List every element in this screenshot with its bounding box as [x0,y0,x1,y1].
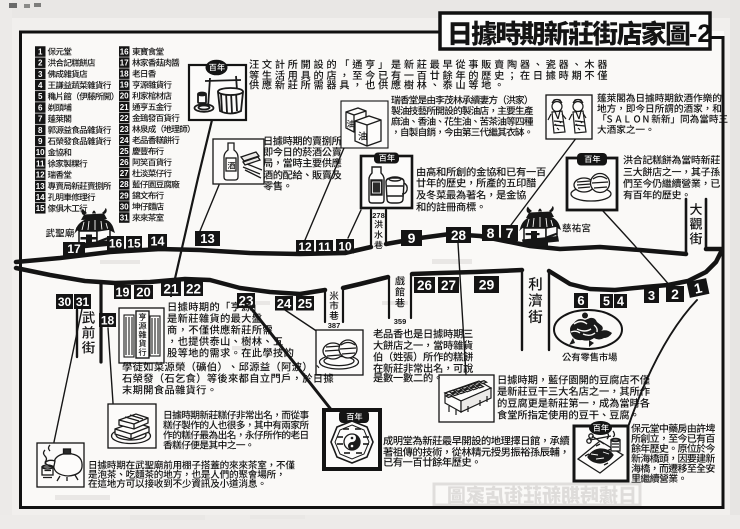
svg-text:5: 5 [38,92,43,101]
svg-text:18: 18 [120,70,129,79]
svg-text:18: 18 [101,313,115,327]
svg-text:4: 4 [617,295,624,309]
svg-text:24: 24 [120,136,129,145]
svg-text:25: 25 [298,296,312,311]
svg-text:5: 5 [603,295,610,309]
svg-text:17: 17 [67,242,81,256]
svg-text:27: 27 [441,278,456,293]
svg-text:14: 14 [151,235,165,249]
svg-text:16: 16 [120,47,129,56]
svg-text:2: 2 [38,59,43,68]
svg-text:2: 2 [671,286,679,302]
svg-text:15: 15 [36,204,45,213]
svg-text:6: 6 [38,103,43,112]
svg-text:21: 21 [163,281,179,296]
svg-text:7: 7 [506,225,514,241]
svg-text:10: 10 [338,240,352,254]
svg-text:14: 14 [36,193,45,202]
svg-text:8: 8 [487,225,495,241]
svg-text:11: 11 [36,159,45,168]
svg-text:12: 12 [298,240,312,254]
svg-text:6: 6 [577,293,584,308]
svg-text:3: 3 [38,70,43,79]
svg-text:20: 20 [136,285,150,300]
svg-text:-2: -2 [689,20,711,48]
svg-text:15: 15 [127,237,141,251]
svg-text:8: 8 [38,126,43,135]
svg-text:31: 31 [120,213,129,222]
svg-text:19: 19 [120,81,129,90]
svg-text:13: 13 [200,231,214,246]
svg-text:11: 11 [318,240,331,254]
svg-text:24: 24 [277,296,292,311]
svg-text:26: 26 [120,158,129,167]
svg-text:26: 26 [417,278,433,293]
svg-text:9: 9 [408,230,416,246]
svg-text:278: 278 [372,211,385,220]
svg-text:23: 23 [120,125,129,134]
svg-text:31: 31 [76,295,90,309]
svg-text:13: 13 [36,182,45,191]
svg-text:3: 3 [648,288,655,303]
svg-text:22: 22 [120,114,129,123]
svg-text:7: 7 [38,115,43,124]
svg-text:21: 21 [120,103,129,112]
svg-text:20: 20 [120,92,129,101]
svg-text:10: 10 [36,148,45,157]
svg-text:387: 387 [328,321,341,330]
svg-text:22: 22 [186,281,201,296]
svg-text:29: 29 [479,277,495,293]
svg-text:16: 16 [109,237,123,251]
svg-text:29: 29 [120,191,129,200]
svg-text:30: 30 [120,202,129,211]
svg-text:28: 28 [120,180,129,189]
svg-text:17: 17 [120,58,129,67]
svg-text:28: 28 [451,228,467,243]
svg-text:12: 12 [36,171,45,180]
svg-text:9: 9 [38,137,43,146]
svg-text:30: 30 [58,295,72,309]
svg-text:27: 27 [120,169,129,178]
svg-text:25: 25 [120,147,129,156]
svg-text:359: 359 [394,317,407,326]
svg-text:4: 4 [38,81,43,90]
svg-text:19: 19 [116,286,130,300]
svg-text:1: 1 [38,47,43,56]
